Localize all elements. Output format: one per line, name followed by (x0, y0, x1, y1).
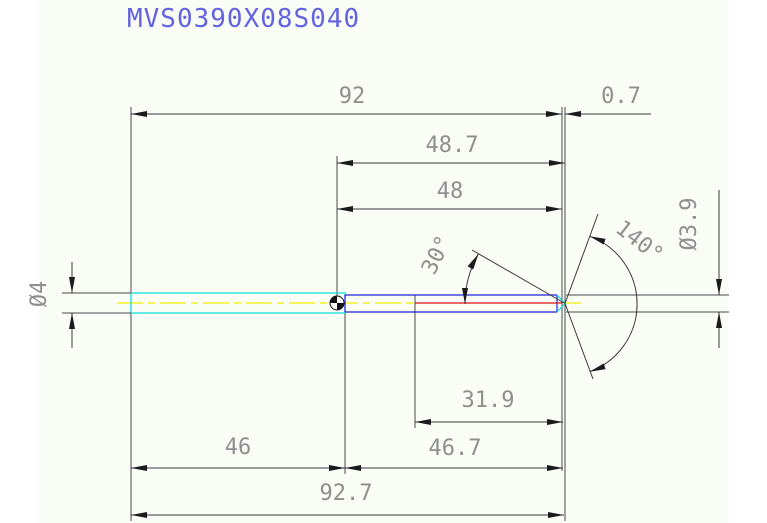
dimension-label: 46 (225, 435, 252, 460)
dimension-label: Ø4 (27, 281, 52, 308)
cad-drawing-canvas: MVS0390X08S040 92 (0, 0, 767, 523)
dimension-label: 0.7 (601, 84, 641, 109)
drawing-background (39, 0, 728, 523)
technical-drawing: MVS0390X08S040 92 (0, 0, 767, 523)
part-number-title: MVS0390X08S040 (127, 4, 360, 34)
dimension-label: 48.7 (426, 133, 479, 158)
dimension-label: 92 (339, 84, 366, 109)
center-of-mass-marker (330, 296, 344, 310)
dimension-label: 48 (437, 179, 464, 204)
dimension-label: 31.9 (462, 388, 515, 413)
dimension-label: Ø3.9 (677, 198, 702, 251)
dimension-label: 46.7 (429, 436, 482, 461)
dimension-label: 92.7 (320, 481, 373, 506)
